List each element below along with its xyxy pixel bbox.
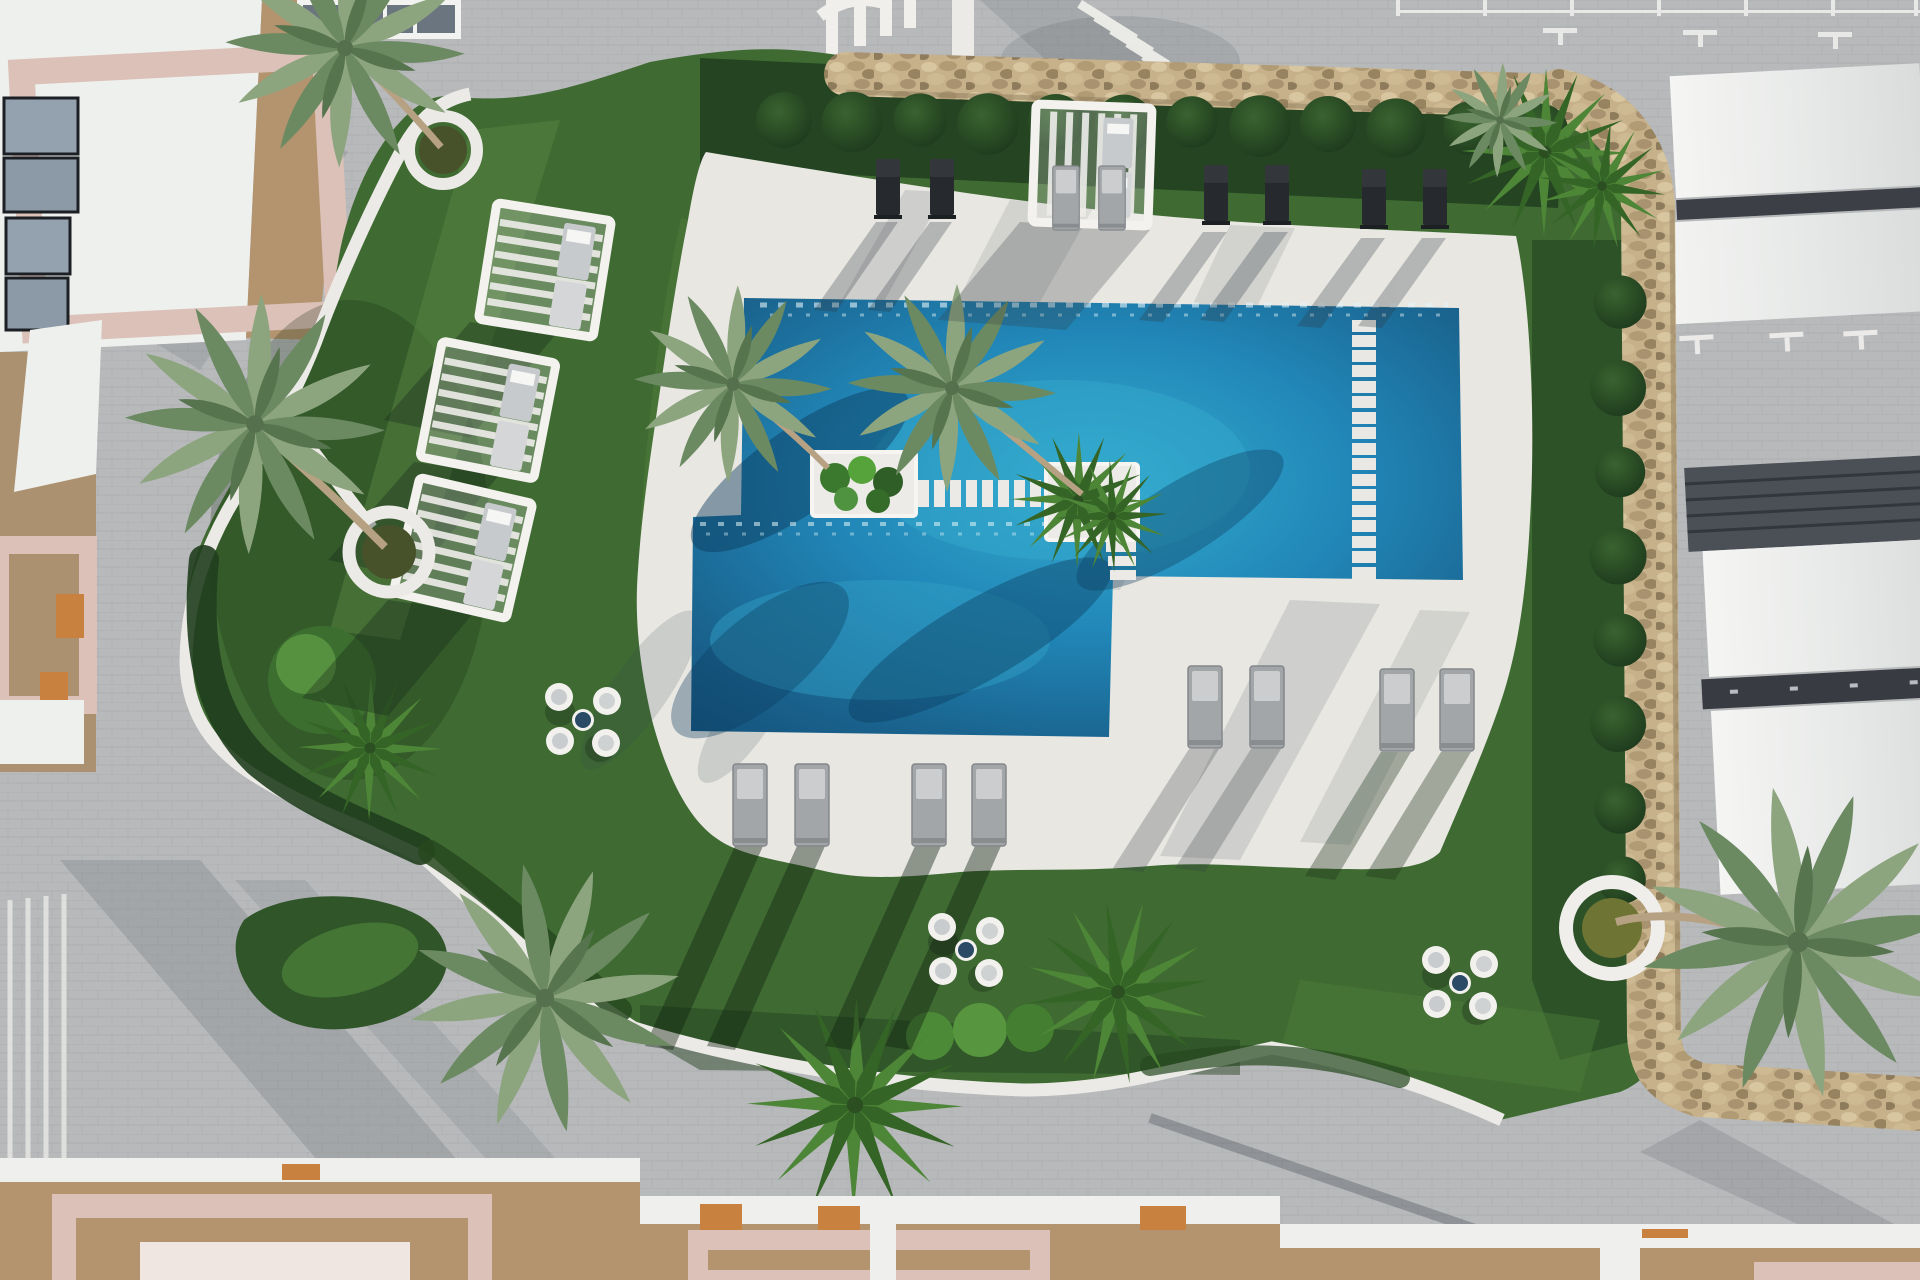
cabana-lounger — [1053, 166, 1080, 230]
white-pier — [1600, 1236, 1640, 1280]
wood-box — [56, 594, 84, 638]
cabana-lounger — [1099, 166, 1126, 230]
stone-wall-top — [846, 74, 1560, 96]
wood-box — [818, 1206, 860, 1232]
wood-box — [40, 672, 68, 704]
glass-pane — [4, 158, 78, 212]
glass-pane — [6, 218, 70, 274]
render-canvas — [0, 0, 1920, 1280]
dark-pitched-roof — [1684, 455, 1920, 552]
glass-pane — [6, 278, 68, 330]
wood-box — [1642, 1229, 1688, 1238]
roof-interior — [140, 1242, 410, 1280]
aerial-pool-render — [0, 0, 1920, 1280]
cabana-left-1 — [478, 203, 611, 338]
wood-box — [700, 1204, 742, 1230]
wood-box — [1140, 1206, 1186, 1230]
pool-step-slats — [1352, 320, 1376, 579]
pink-roof — [1754, 1262, 1920, 1280]
white-pier — [870, 1224, 896, 1280]
white-roof-slab — [1643, 209, 1920, 326]
white-parapet — [0, 700, 84, 764]
cabana-top — [1032, 104, 1152, 226]
white-roof-slab — [1670, 63, 1920, 198]
cabana-left-2 — [420, 341, 556, 479]
glass-pane — [4, 98, 78, 154]
building-left-strip — [0, 320, 102, 772]
white-roof-slab — [1703, 539, 1920, 677]
wood-box — [282, 1164, 320, 1180]
